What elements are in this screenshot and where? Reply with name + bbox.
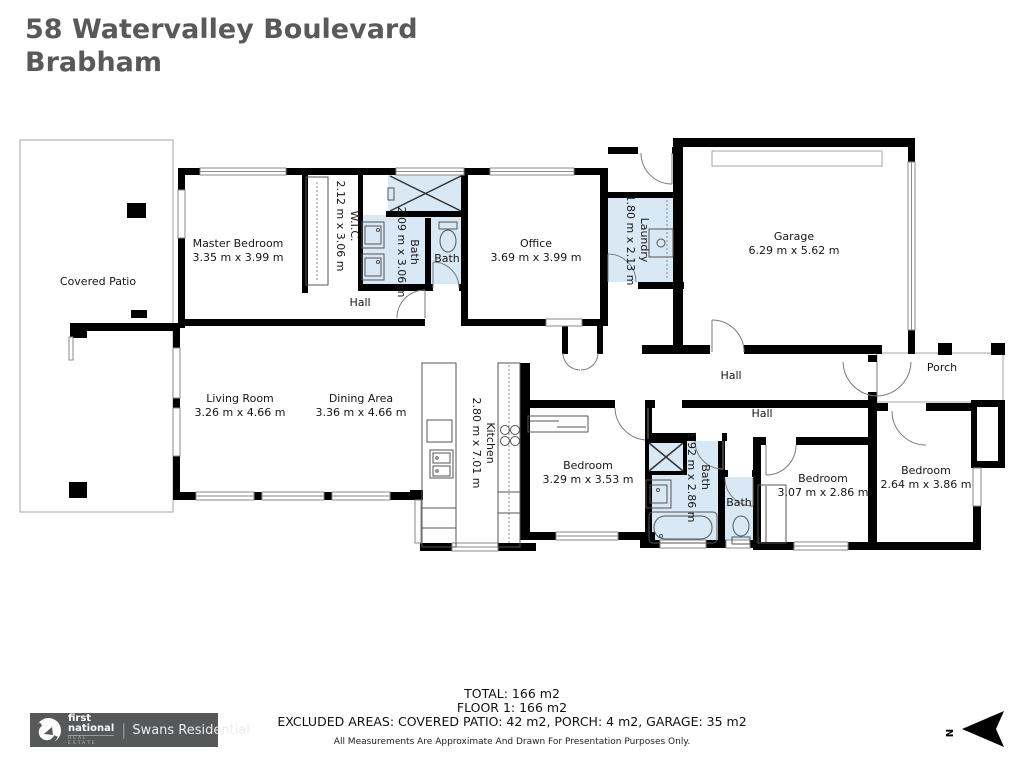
room-dims-ensuite: 2.09 m x 3.06 m [395, 207, 408, 298]
first-national-icon [35, 717, 62, 744]
room-dims-wic: 2.12 m x 3.06 m [334, 181, 347, 272]
agency-logo: first national REAL ESTATE | Swans Resid… [30, 713, 218, 747]
garage-storage [712, 151, 882, 166]
room-dims-bedroom2: 3.07 m x 2.86 m [778, 486, 869, 499]
patio-pillar [69, 482, 87, 498]
room-label-dining-area: Dining Area [329, 392, 393, 405]
room-label-garage: Garage [774, 230, 815, 243]
bedroom1-closet [528, 416, 588, 432]
room-label-kitchen: Kitchen [484, 422, 497, 463]
room-dims-office: 3.69 m x 3.99 m [491, 251, 582, 264]
patio-pillar [131, 310, 147, 318]
room-label-porch: Porch [927, 361, 957, 374]
room-dims-dining-area: 3.36 m x 4.66 m [316, 406, 407, 419]
room-label-living-room: Living Room [206, 392, 274, 405]
logo-agency-name: Swans Residential [132, 723, 250, 738]
logo-separator: | [121, 721, 126, 739]
patio-pillar [70, 323, 87, 338]
kitchen-counter-stove [498, 363, 520, 547]
room-dims-kitchen: 2.80 m x 7.01 m [470, 398, 483, 489]
floor-plan: Master Bedroom 3.35 m x 3.99 m W.I.C. 2.… [0, 0, 1024, 768]
room-dims-bedroom1: 3.29 m x 3.53 m [543, 473, 634, 486]
room-label-hall-lower: Hall [751, 407, 772, 420]
room-label-bedroom2: Bedroom [798, 472, 848, 485]
room-label-laundry: Laundry [638, 218, 651, 263]
room-dims-living-room: 3.26 m x 4.66 m [195, 406, 286, 419]
room-label-bedroom3: Bedroom [901, 464, 951, 477]
room-label-main-wc: Bath [726, 496, 752, 509]
room-label-ensuite-wc: Bath [434, 252, 460, 265]
room-label-bedroom1: Bedroom [563, 459, 613, 472]
room-label-main-bath: Bath [699, 464, 712, 490]
room-label-hall-upper: Hall [349, 296, 370, 309]
room-label-covered-patio: Covered Patio [60, 275, 136, 288]
room-label-hall-mid: Hall [720, 369, 741, 382]
floorplan-page: 58 Watervalley Boulevard Brabham [0, 0, 1024, 768]
main-bath-shower [647, 441, 685, 473]
room-label-wic: W.I.C. [348, 210, 361, 241]
room-dims-master-bedroom: 3.35 m x 3.99 m [193, 251, 284, 264]
room-label-master-bedroom: Master Bedroom [193, 237, 284, 250]
room-dims-main-bath: 1.92 m x 2.86 m [685, 432, 698, 523]
ensuite-wc-area [425, 215, 467, 286]
wic-wardrobe [306, 177, 328, 285]
logo-tagline: REAL ESTATE [68, 737, 114, 746]
room-label-ensuite: Bath [408, 239, 421, 265]
room-label-office: Office [520, 237, 552, 250]
room-dims-garage: 6.29 m x 5.62 m [749, 244, 840, 257]
patio-pillar [127, 203, 146, 218]
room-dims-laundry: 1.80 m x 2.13 m [624, 195, 637, 286]
total-area: TOTAL: 166 m2 [0, 687, 1024, 701]
room-dims-bedroom3: 2.64 m x 3.86 m [881, 478, 972, 491]
logo-brand: first national REAL ESTATE [68, 714, 114, 746]
logo-national: national [68, 724, 114, 736]
kitchen-island [422, 363, 456, 547]
